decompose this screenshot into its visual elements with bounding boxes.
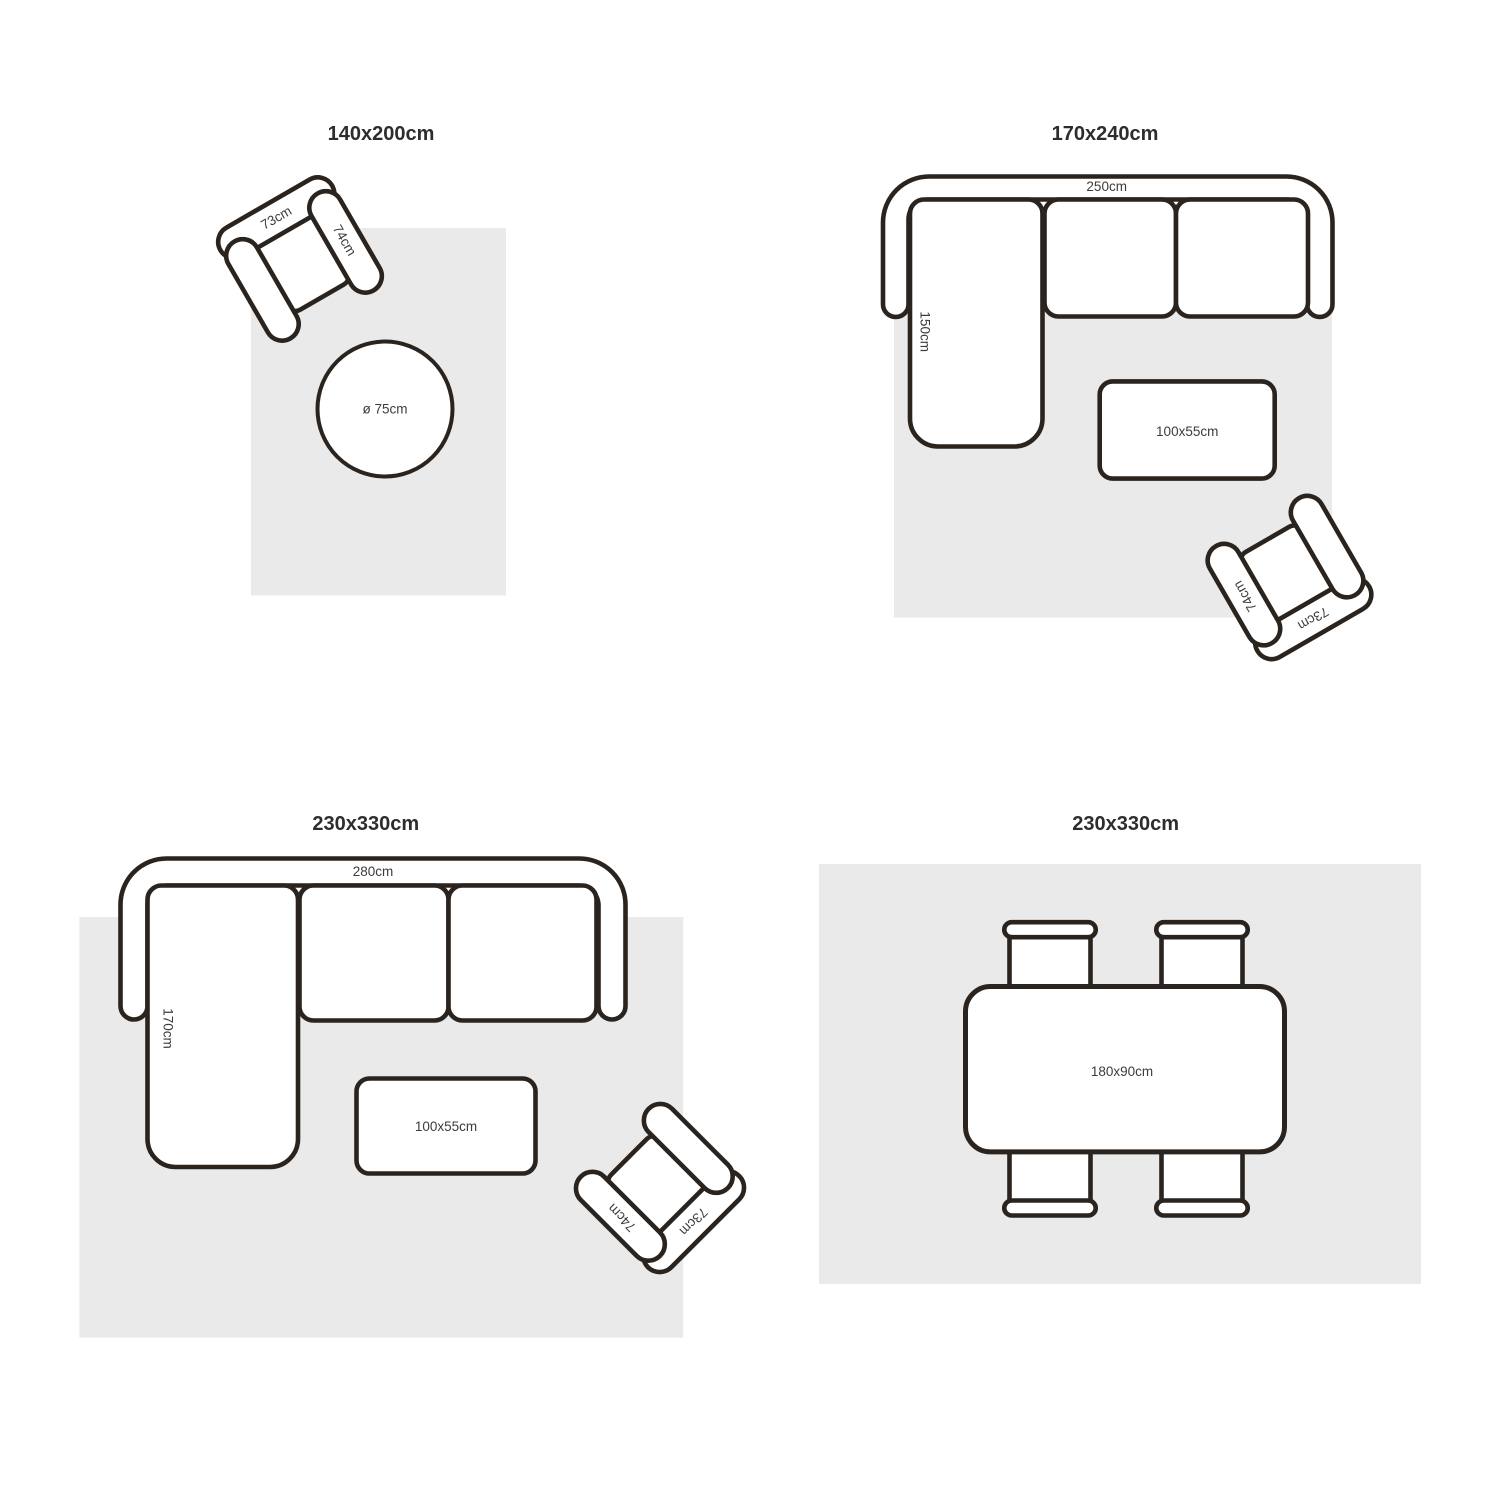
svg-text:250cm: 250cm	[1086, 179, 1127, 194]
svg-text:170cm: 170cm	[161, 1008, 176, 1049]
svg-text:140x200cm: 140x200cm	[328, 123, 435, 145]
svg-text:150cm: 150cm	[918, 311, 933, 352]
svg-text:280cm: 280cm	[353, 864, 394, 879]
svg-text:170x240cm: 170x240cm	[1052, 123, 1159, 145]
svg-text:ø 75cm: ø 75cm	[362, 402, 407, 417]
svg-text:100x55cm: 100x55cm	[415, 1119, 477, 1134]
svg-text:100x55cm: 100x55cm	[1156, 424, 1218, 439]
svg-text:230x330cm: 230x330cm	[312, 813, 419, 835]
svg-text:230x330cm: 230x330cm	[1072, 813, 1179, 835]
svg-text:180x90cm: 180x90cm	[1091, 1064, 1153, 1079]
